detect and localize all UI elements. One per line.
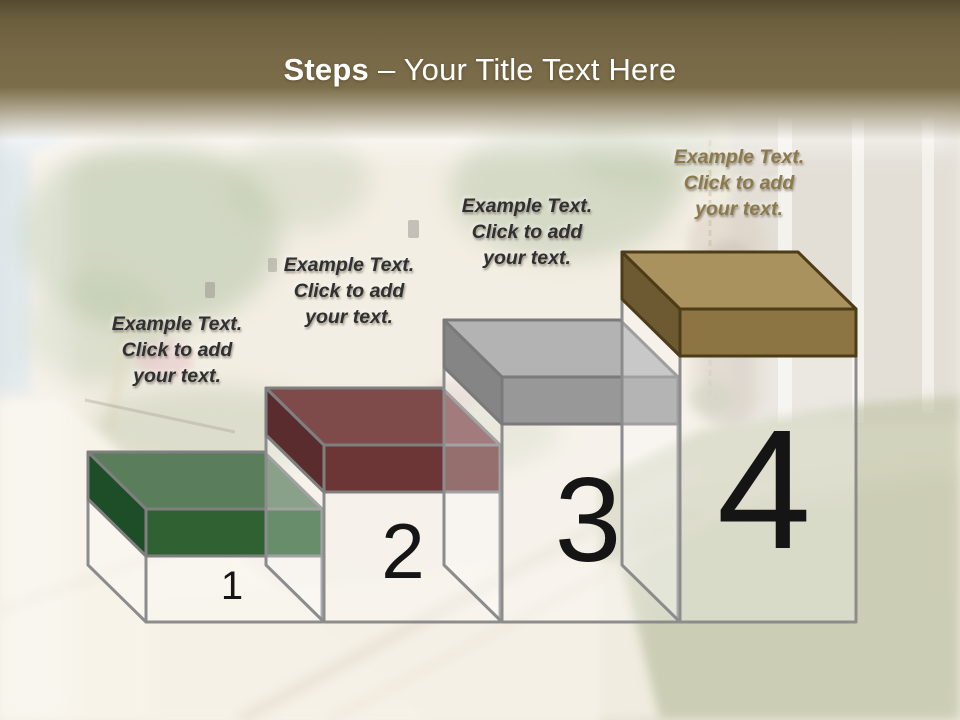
slide-canvas: Steps– Your Title Text Here <box>0 0 960 720</box>
label-line: Click to add <box>629 170 849 196</box>
label-line: Example Text. <box>629 144 849 170</box>
step-4-text-placeholder[interactable]: Example Text. Click to add your text. <box>629 144 849 222</box>
label-line: Click to add <box>417 219 637 245</box>
label-line: Click to add <box>239 278 459 304</box>
label-line: your text. <box>629 196 849 222</box>
step-4-number: 4 <box>694 405 834 575</box>
label-line: your text. <box>239 304 459 330</box>
step-3-number: 3 <box>518 460 658 580</box>
label-line: Example Text. <box>417 193 637 219</box>
label-line: Click to add <box>67 337 287 363</box>
step-2-number: 2 <box>333 512 473 590</box>
step-4-lid-front <box>680 309 856 356</box>
label-line: your text. <box>67 363 287 389</box>
step-1-number: 1 <box>162 566 302 606</box>
step-3-text-placeholder[interactable]: Example Text. Click to add your text. <box>417 193 637 271</box>
label-line: your text. <box>417 245 637 271</box>
